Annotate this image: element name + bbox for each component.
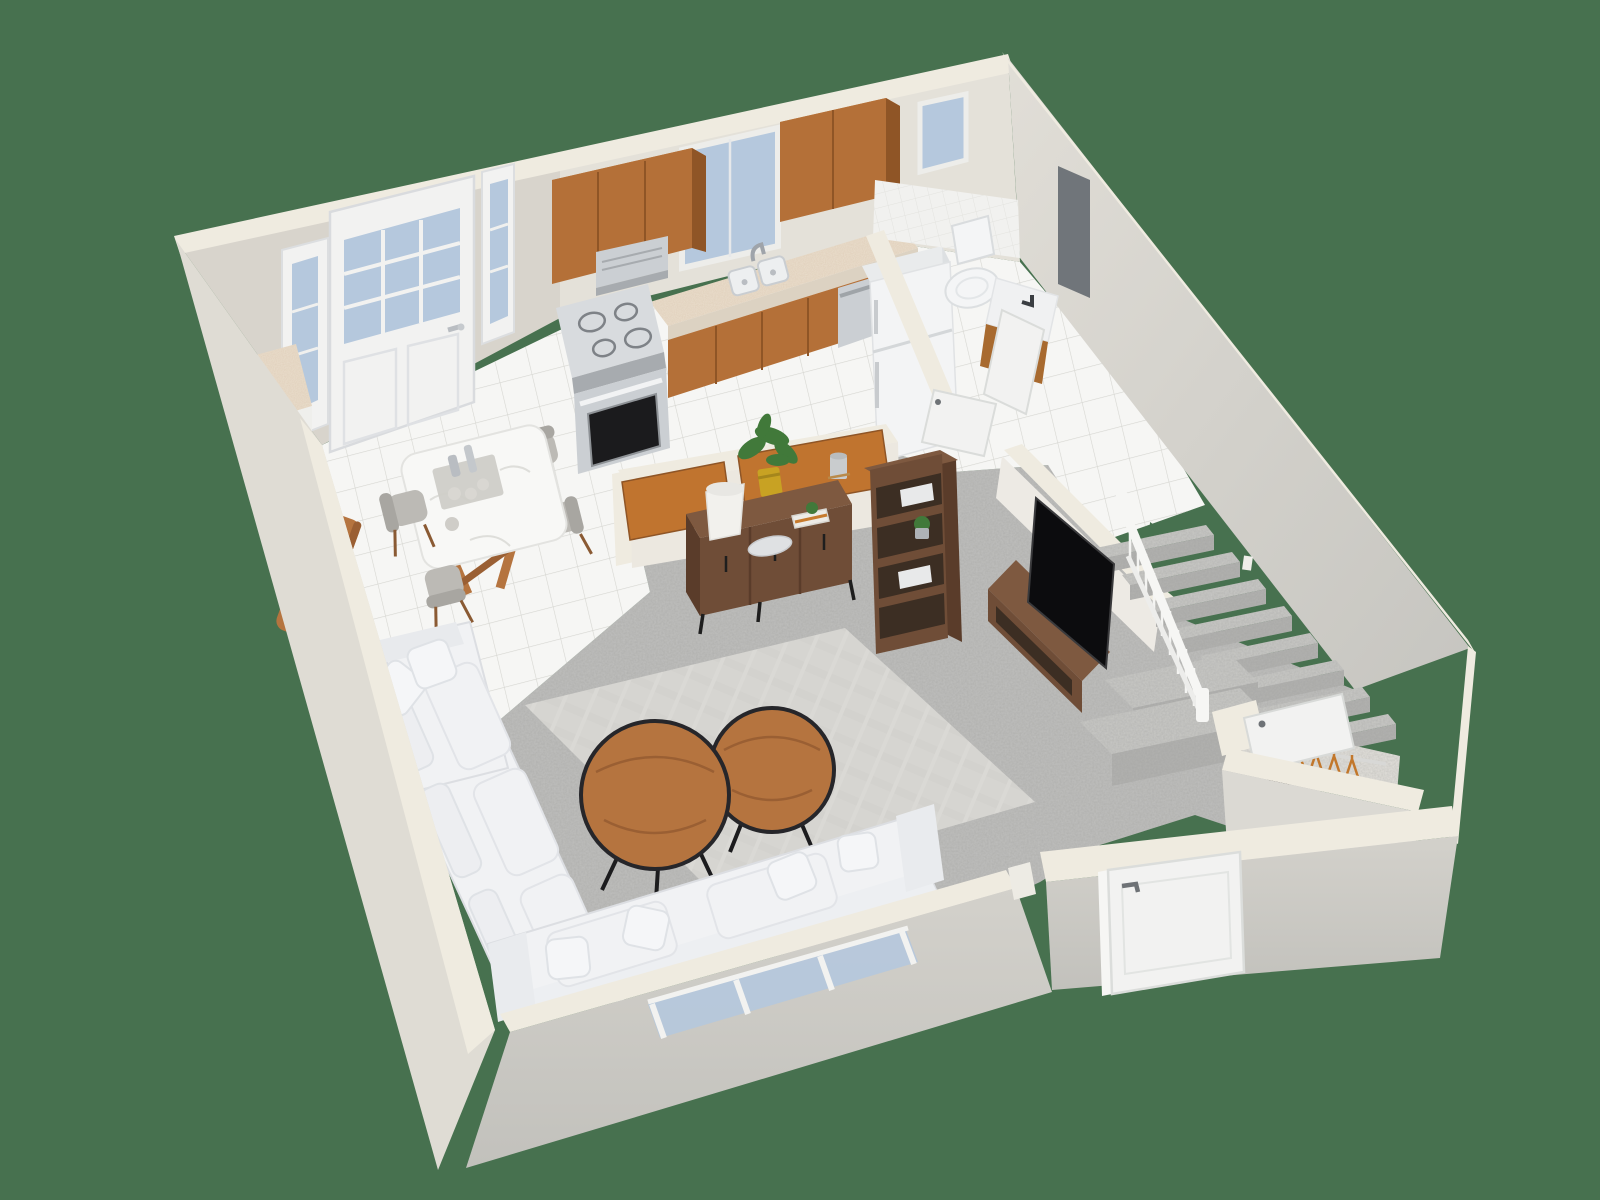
floorplan-svg	[0, 0, 1600, 1200]
floorplan-render: 3D isometric floor plan rendering of an …	[0, 0, 1600, 1200]
side-door	[1098, 852, 1244, 996]
bookcase	[864, 450, 962, 654]
mirror	[1058, 166, 1090, 298]
shelf-plant	[914, 516, 930, 539]
table-lamp	[706, 482, 744, 540]
candle	[828, 453, 850, 480]
sidelight-right	[490, 179, 508, 324]
bathroom-small-window	[920, 94, 966, 172]
